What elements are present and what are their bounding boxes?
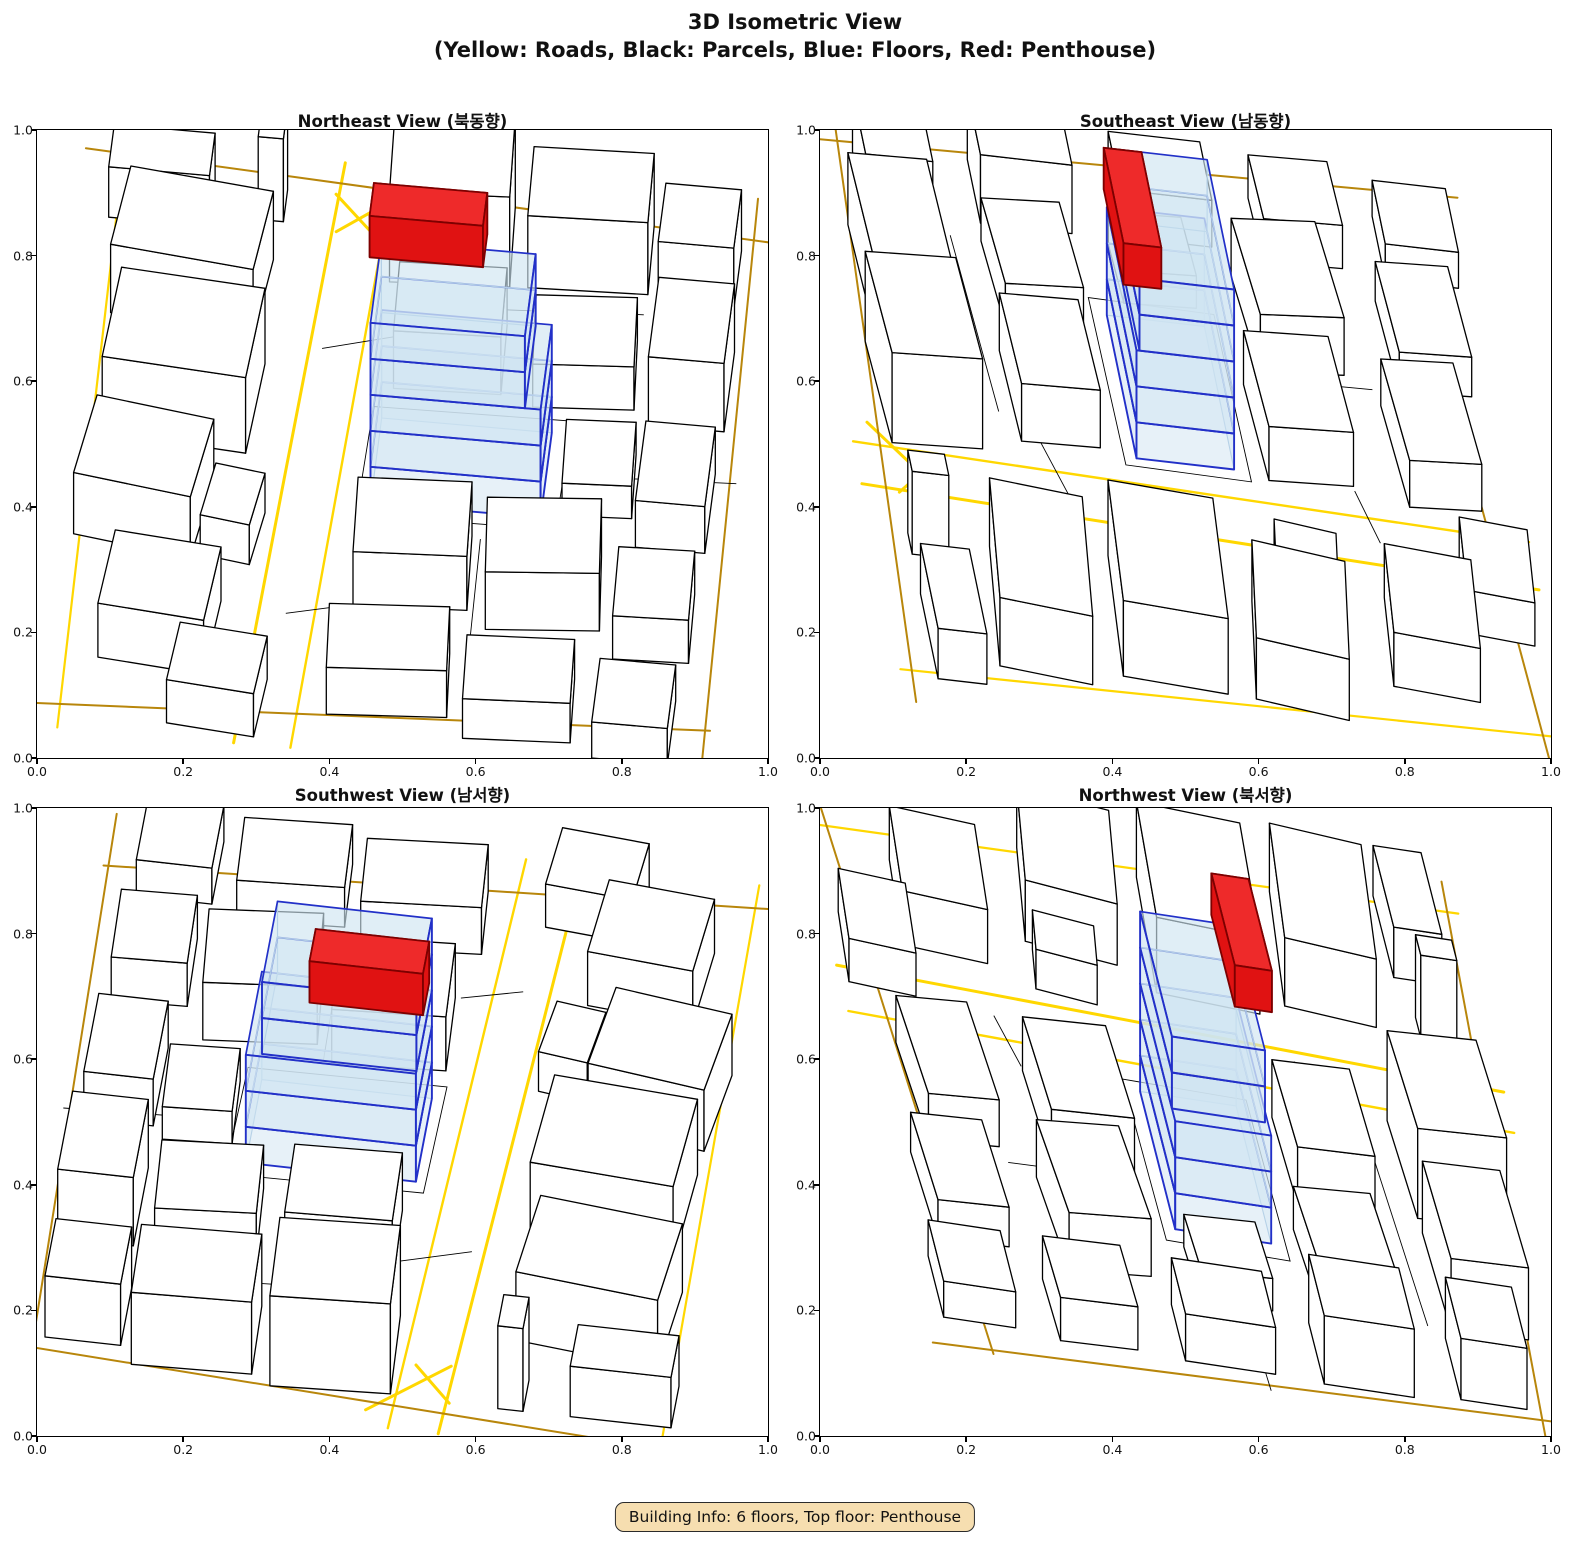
x-tick-label: 0.8 — [612, 764, 632, 779]
x-tick-label: 0.0 — [27, 764, 47, 779]
panel-title-southwest: Southwest View (남서향) — [37, 782, 768, 806]
y-tick-label: 0.4 — [0, 1177, 33, 1192]
y-tick-label: 0.0 — [782, 751, 816, 766]
y-tick-label: 0.8 — [782, 248, 816, 263]
panel-title-southeast: Southeast View (남동향) — [820, 108, 1551, 132]
y-tick-label: 0.4 — [0, 499, 33, 514]
y-tick-label: 1.0 — [782, 801, 816, 816]
y-tick-label: 0.6 — [0, 374, 33, 389]
x-tick-label: 0.4 — [319, 1442, 339, 1457]
x-tick-label: 0.4 — [1102, 1442, 1122, 1457]
y-tick-label: 0.0 — [782, 1429, 816, 1444]
y-tick-label: 0.8 — [782, 926, 816, 941]
y-tick-label: 0.2 — [782, 1303, 816, 1318]
y-tick-label: 0.4 — [782, 1177, 816, 1192]
plot-northwest — [820, 808, 1551, 1436]
plot-southeast — [820, 130, 1551, 758]
plot-canvas-southeast — [820, 130, 1551, 758]
x-tick-label: 1.0 — [758, 764, 778, 779]
panel-title-northeast: Northeast View (북동향) — [37, 108, 768, 132]
y-tick-label: 0.2 — [0, 625, 33, 640]
y-tick-label: 0.0 — [0, 1429, 33, 1444]
x-tick-label: 0.8 — [1395, 764, 1415, 779]
x-tick-label: 0.8 — [612, 1442, 632, 1457]
y-tick-label: 0.8 — [0, 248, 33, 263]
x-tick-label: 0.6 — [466, 764, 486, 779]
panel-title-northwest: Northwest View (북서향) — [820, 782, 1551, 806]
figure-title: 3D Isometric View (Yellow: Roads, Black:… — [0, 8, 1590, 64]
y-tick-label: 0.0 — [0, 751, 33, 766]
building-info-badge: Building Info: 6 floors, Top floor: Pent… — [615, 1502, 975, 1532]
y-tick-label: 0.6 — [0, 1052, 33, 1067]
x-tick-label: 0.6 — [466, 1442, 486, 1457]
y-tick-label: 0.2 — [782, 625, 816, 640]
plot-northeast — [37, 130, 768, 758]
x-tick-label: 0.0 — [27, 1442, 47, 1457]
x-tick-label: 0.2 — [173, 1442, 193, 1457]
y-tick-label: 1.0 — [0, 801, 33, 816]
x-tick-label: 0.6 — [1249, 1442, 1269, 1457]
plot-canvas-northeast — [37, 130, 768, 758]
figure-title-line1: 3D Isometric View — [0, 8, 1590, 36]
x-tick-label: 0.4 — [1102, 764, 1122, 779]
y-tick-label: 0.6 — [782, 374, 816, 389]
plot-canvas-northwest — [820, 808, 1551, 1436]
x-tick-label: 0.0 — [810, 1442, 830, 1457]
x-tick-label: 0.2 — [956, 764, 976, 779]
x-tick-label: 1.0 — [1541, 1442, 1561, 1457]
y-tick-label: 0.8 — [0, 926, 33, 941]
y-tick-label: 1.0 — [782, 123, 816, 138]
plot-southwest — [37, 808, 768, 1436]
x-tick-label: 0.4 — [319, 764, 339, 779]
x-tick-label: 1.0 — [758, 1442, 778, 1457]
x-tick-label: 0.6 — [1249, 764, 1269, 779]
y-tick-label: 0.4 — [782, 499, 816, 514]
x-tick-label: 1.0 — [1541, 764, 1561, 779]
plot-canvas-southwest — [37, 808, 768, 1436]
x-tick-label: 0.2 — [956, 1442, 976, 1457]
y-tick-label: 0.2 — [0, 1303, 33, 1318]
x-tick-label: 0.2 — [173, 764, 193, 779]
figure-title-line2: (Yellow: Roads, Black: Parcels, Blue: Fl… — [0, 36, 1590, 64]
x-tick-label: 0.8 — [1395, 1442, 1415, 1457]
y-tick-label: 0.6 — [782, 1052, 816, 1067]
x-tick-label: 0.0 — [810, 764, 830, 779]
y-tick-label: 1.0 — [0, 123, 33, 138]
